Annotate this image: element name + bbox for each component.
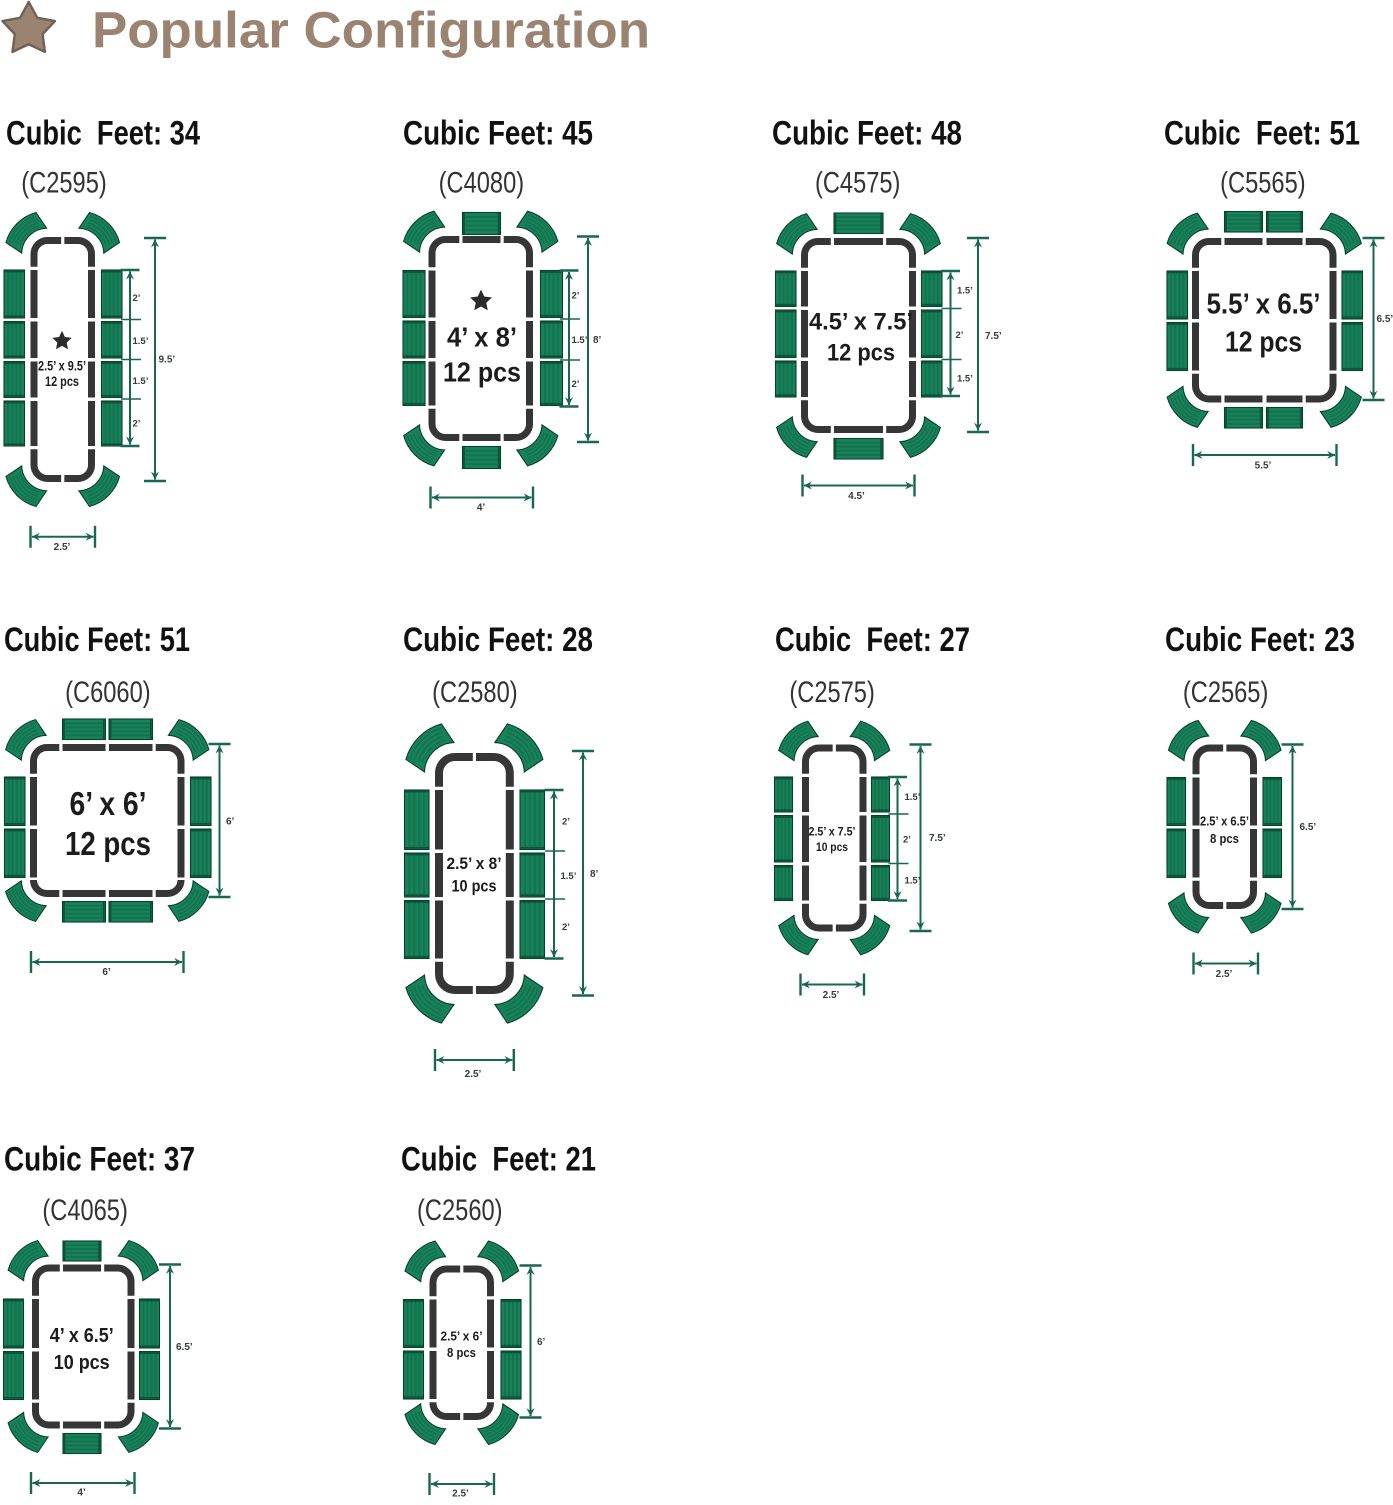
svg-text:7.5’: 7.5’ (985, 331, 1002, 342)
svg-text:(C4575): (C4575) (815, 167, 901, 200)
svg-text:4.5’ x 7.5’: 4.5’ x 7.5’ (809, 309, 913, 336)
svg-text:Cubic Feet: 45: Cubic Feet: 45 (403, 115, 593, 153)
svg-text:Cubic Feet: 48: Cubic Feet: 48 (772, 115, 962, 153)
svg-text:2.5’: 2.5’ (54, 542, 71, 553)
svg-text:2.5’: 2.5’ (452, 1489, 469, 1500)
svg-text:6’: 6’ (537, 1337, 546, 1348)
svg-text:6.5’: 6.5’ (176, 1342, 193, 1353)
svg-text:1.5’: 1.5’ (572, 335, 588, 346)
svg-text:8’: 8’ (593, 335, 602, 346)
svg-text:8 pcs: 8 pcs (447, 1345, 476, 1360)
svg-text:8 pcs: 8 pcs (1210, 831, 1239, 846)
svg-text:(C2565): (C2565) (1183, 676, 1269, 709)
svg-text:5.5’: 5.5’ (1255, 461, 1272, 472)
svg-text:(C5565): (C5565) (1220, 167, 1306, 200)
svg-text:Popular Configuration: Popular Configuration (92, 2, 650, 59)
svg-text:2’: 2’ (903, 835, 911, 846)
svg-text:2.5’ x 7.5’: 2.5’ x 7.5’ (809, 825, 856, 839)
svg-text:Cubic Feet: 23: Cubic Feet: 23 (1165, 621, 1355, 659)
svg-text:(C2560): (C2560) (417, 1194, 503, 1227)
svg-text:2.5’: 2.5’ (465, 1069, 482, 1080)
svg-text:2’: 2’ (133, 293, 141, 304)
svg-text:Cubic Feet: 27: Cubic Feet: 27 (775, 621, 970, 659)
svg-text:2’: 2’ (572, 291, 580, 302)
svg-text:2.5’ x 6.5’: 2.5’ x 6.5’ (1200, 814, 1249, 829)
svg-text:2.5’ x 6’: 2.5’ x 6’ (441, 1329, 483, 1344)
svg-text:12 pcs: 12 pcs (45, 374, 79, 389)
svg-text:6.5’: 6.5’ (1300, 822, 1317, 833)
svg-text:(C4080): (C4080) (439, 167, 525, 200)
svg-text:4’: 4’ (477, 503, 486, 514)
svg-text:1.5’: 1.5’ (957, 286, 973, 297)
svg-text:2.5’ x 9.5’: 2.5’ x 9.5’ (38, 359, 86, 374)
svg-text:(C2580): (C2580) (432, 676, 518, 709)
svg-text:(C6060): (C6060) (65, 676, 151, 709)
svg-text:12 pcs: 12 pcs (827, 340, 895, 367)
svg-text:2.5’ x 8’: 2.5’ x 8’ (447, 854, 502, 873)
svg-text:1.5’: 1.5’ (957, 374, 973, 385)
svg-text:2.5’: 2.5’ (823, 990, 840, 1001)
svg-text:2’: 2’ (956, 330, 964, 341)
svg-text:10 pcs: 10 pcs (54, 1352, 110, 1374)
svg-text:Cubic Feet: 21: Cubic Feet: 21 (401, 1141, 596, 1179)
svg-text:2’: 2’ (562, 922, 570, 933)
svg-text:6’ x 6’: 6’ x 6’ (70, 785, 147, 822)
svg-text:Cubic Feet: 51: Cubic Feet: 51 (1164, 115, 1360, 153)
svg-text:6’: 6’ (226, 817, 235, 828)
svg-text:9.5’: 9.5’ (159, 355, 176, 366)
svg-text:2.5’: 2.5’ (1216, 969, 1233, 980)
svg-text:1.5’: 1.5’ (133, 336, 149, 347)
svg-text:12 pcs: 12 pcs (1225, 327, 1302, 359)
svg-text:(C2595): (C2595) (21, 167, 107, 200)
svg-text:4’ x 6.5’: 4’ x 6.5’ (50, 1325, 114, 1347)
svg-text:7.5’: 7.5’ (929, 833, 946, 844)
svg-text:2’: 2’ (572, 379, 580, 390)
svg-text:Cubic Feet: 37: Cubic Feet: 37 (4, 1141, 195, 1179)
svg-text:10 pcs: 10 pcs (816, 840, 848, 854)
svg-text:6’: 6’ (102, 967, 111, 978)
svg-text:1.5’: 1.5’ (905, 792, 921, 803)
svg-text:4’: 4’ (77, 1488, 86, 1499)
svg-text:10 pcs: 10 pcs (452, 877, 497, 896)
svg-text:6.5’: 6.5’ (1377, 314, 1393, 325)
svg-text:1.5’: 1.5’ (561, 871, 577, 882)
svg-text:12 pcs: 12 pcs (443, 357, 521, 388)
svg-text:(C2575): (C2575) (789, 676, 875, 709)
svg-text:12 pcs: 12 pcs (65, 825, 151, 862)
svg-text:2’: 2’ (562, 817, 570, 828)
svg-text:Cubic Feet: 28: Cubic Feet: 28 (403, 621, 593, 659)
svg-text:1.5’: 1.5’ (905, 876, 921, 887)
svg-text:8’: 8’ (590, 869, 599, 880)
svg-text:5.5’ x 6.5’: 5.5’ x 6.5’ (1207, 289, 1321, 321)
svg-text:Cubic Feet: 34: Cubic Feet: 34 (6, 115, 200, 153)
svg-text:4’ x 8’: 4’ x 8’ (447, 322, 517, 353)
svg-text:Cubic Feet: 51: Cubic Feet: 51 (4, 621, 190, 659)
svg-text:4.5’: 4.5’ (848, 491, 865, 502)
svg-text:1.5’: 1.5’ (133, 376, 149, 387)
svg-text:2’: 2’ (133, 419, 141, 430)
svg-text:(C4065): (C4065) (42, 1194, 128, 1227)
